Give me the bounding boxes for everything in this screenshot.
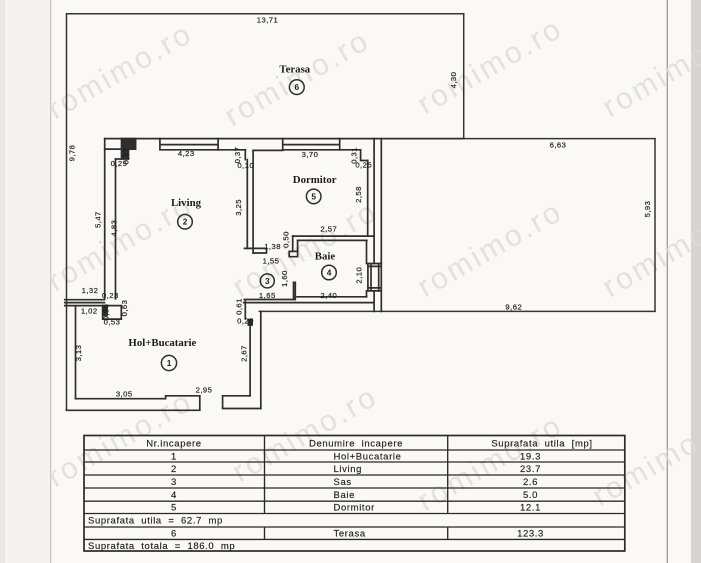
svg-text:5: 5	[171, 503, 177, 514]
svg-text:Suprafata utila [mp]: Suprafata utila [mp]	[491, 438, 592, 449]
svg-text:Terasa: Terasa	[279, 64, 310, 76]
svg-text:0,20: 0,20	[237, 317, 254, 326]
svg-text:13,71: 13,71	[257, 16, 279, 25]
svg-text:Hol+Bucatarie: Hol+Bucatarie	[128, 337, 196, 349]
svg-text:0,50: 0,50	[282, 231, 291, 248]
svg-text:0,23: 0,23	[102, 291, 119, 300]
svg-text:2,10: 2,10	[355, 267, 364, 284]
svg-text:1,65: 1,65	[259, 291, 276, 300]
svg-text:12.1: 12.1	[520, 503, 541, 514]
svg-text:23.7: 23.7	[520, 464, 541, 475]
svg-text:3,13: 3,13	[74, 345, 83, 362]
svg-text:1,02: 1,02	[81, 306, 98, 315]
svg-text:Terasa: Terasa	[334, 529, 366, 540]
svg-text:2,67: 2,67	[239, 345, 248, 362]
svg-text:4,83: 4,83	[109, 220, 118, 237]
svg-text:Nr.incapere: Nr.incapere	[146, 438, 201, 449]
svg-text:3: 3	[171, 477, 177, 488]
svg-text:6: 6	[171, 529, 177, 540]
svg-text:Living: Living	[334, 464, 363, 475]
svg-text:Baie: Baie	[334, 490, 356, 501]
svg-text:6,63: 6,63	[550, 141, 567, 150]
svg-text:2: 2	[183, 217, 188, 227]
svg-text:Hol+Bucatarie: Hol+Bucatarie	[334, 451, 402, 462]
svg-text:3,25: 3,25	[234, 199, 243, 216]
svg-text:123.3: 123.3	[517, 529, 544, 540]
svg-text:0,61: 0,61	[235, 298, 244, 315]
svg-text:Suprafata utila = 62.7 mp: Suprafata utila = 62.7 mp	[88, 516, 223, 527]
svg-text:2.6: 2.6	[523, 477, 538, 488]
svg-text:2: 2	[171, 464, 177, 475]
svg-text:Dormitor: Dormitor	[293, 174, 337, 186]
svg-text:3,05: 3,05	[116, 389, 133, 398]
svg-text:0,36: 0,36	[102, 304, 111, 321]
svg-text:4,30: 4,30	[449, 72, 458, 89]
svg-text:19.3: 19.3	[520, 451, 541, 462]
svg-text:6: 6	[294, 82, 299, 92]
svg-text:4: 4	[171, 490, 177, 501]
svg-text:9,62: 9,62	[505, 302, 522, 311]
svg-text:3: 3	[265, 276, 270, 286]
svg-text:1,55: 1,55	[263, 256, 280, 265]
svg-text:2,57: 2,57	[320, 225, 337, 234]
svg-text:Denumire incapere: Denumire incapere	[309, 438, 403, 449]
svg-text:Baie: Baie	[315, 251, 336, 263]
svg-text:0,31: 0,31	[350, 147, 359, 164]
svg-text:0,37: 0,37	[122, 148, 131, 165]
svg-text:Suprafata totala = 186.0 m: Suprafata totala = 186.0 mp	[88, 541, 235, 552]
svg-text:5: 5	[311, 191, 316, 201]
svg-text:5.0: 5.0	[523, 490, 538, 501]
svg-text:2,40: 2,40	[320, 291, 337, 300]
svg-text:0,37: 0,37	[233, 147, 242, 164]
svg-text:1,60: 1,60	[280, 270, 289, 287]
svg-text:2,95: 2,95	[196, 386, 213, 395]
svg-text:Sas: Sas	[334, 477, 352, 488]
svg-text:Dormitor: Dormitor	[334, 503, 375, 514]
svg-text:4: 4	[327, 267, 332, 277]
svg-text:3,70: 3,70	[302, 150, 319, 159]
svg-text:5,47: 5,47	[94, 211, 103, 228]
svg-text:0,63: 0,63	[120, 300, 129, 317]
svg-text:2,58: 2,58	[354, 186, 363, 203]
svg-text:1,32: 1,32	[82, 286, 99, 295]
svg-text:9,78: 9,78	[68, 145, 77, 162]
svg-text:4,23: 4,23	[178, 149, 195, 158]
svg-text:1,38: 1,38	[264, 242, 281, 251]
svg-text:Living: Living	[171, 197, 202, 209]
svg-text:1: 1	[167, 358, 172, 368]
svg-text:1: 1	[171, 451, 177, 462]
svg-text:5,93: 5,93	[643, 201, 652, 218]
